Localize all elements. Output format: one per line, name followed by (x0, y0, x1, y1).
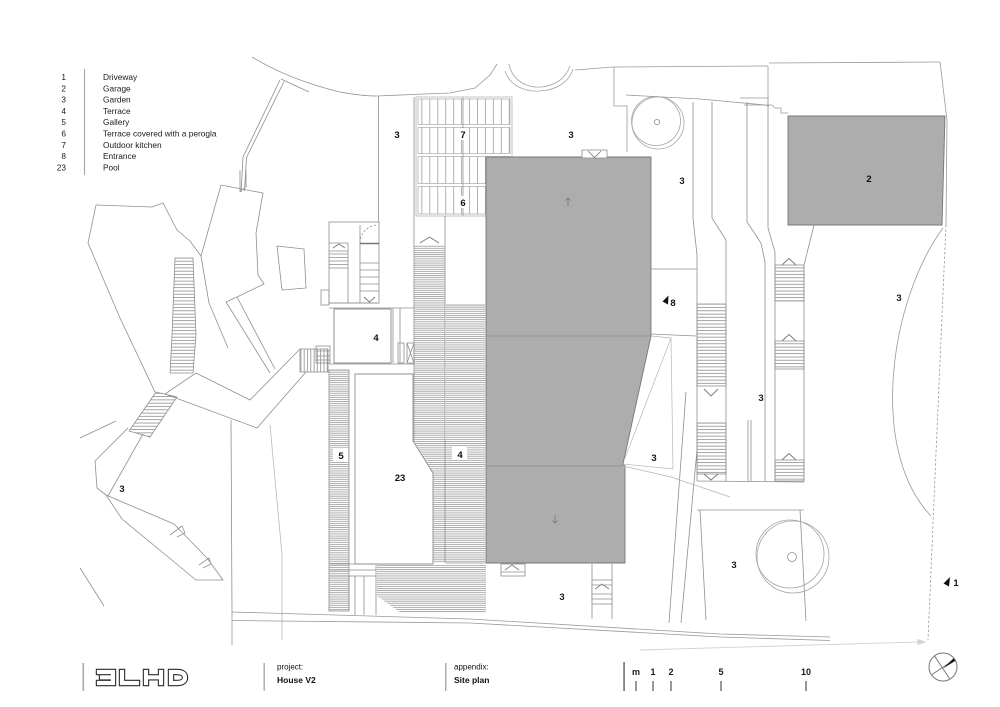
svg-text:4: 4 (61, 106, 66, 116)
svg-text:8: 8 (670, 298, 675, 309)
svg-text:m: m (632, 667, 640, 677)
svg-text:1: 1 (953, 578, 959, 589)
svg-text:23: 23 (57, 162, 67, 172)
svg-text:5: 5 (718, 667, 723, 677)
svg-text:3: 3 (651, 453, 656, 464)
svg-text:3: 3 (61, 95, 66, 105)
svg-text:Entrance: Entrance (103, 151, 137, 161)
svg-text:project:: project: (277, 663, 303, 672)
svg-text:3: 3 (394, 130, 399, 141)
svg-text:7: 7 (61, 140, 66, 150)
svg-text:House V2: House V2 (277, 675, 316, 685)
svg-text:Garden: Garden (103, 95, 131, 105)
svg-text:5: 5 (338, 451, 344, 462)
svg-text:23: 23 (395, 473, 406, 484)
svg-text:Terrace covered with a perogla: Terrace covered with a perogla (103, 129, 217, 139)
svg-text:3: 3 (119, 484, 124, 495)
svg-text:Terrace: Terrace (103, 106, 131, 116)
svg-text:1: 1 (650, 667, 655, 677)
svg-text:3: 3 (568, 130, 573, 141)
svg-text:8: 8 (61, 151, 66, 161)
svg-text:4: 4 (457, 450, 463, 461)
svg-text:Garage: Garage (103, 83, 131, 93)
svg-text:4: 4 (373, 333, 379, 344)
svg-text:6: 6 (61, 129, 66, 139)
svg-text:Pool: Pool (103, 162, 120, 172)
svg-text:3: 3 (559, 592, 564, 603)
svg-text:3: 3 (679, 176, 684, 187)
svg-text:3: 3 (731, 560, 736, 571)
svg-text:Site plan: Site plan (454, 675, 489, 685)
svg-text:2: 2 (668, 667, 673, 677)
svg-text:10: 10 (801, 667, 811, 677)
svg-text:2: 2 (866, 174, 871, 185)
svg-text:Driveway: Driveway (103, 72, 138, 82)
svg-text:3: 3 (758, 393, 763, 404)
svg-text:3: 3 (896, 293, 901, 304)
svg-text:Gallery: Gallery (103, 117, 130, 127)
svg-text:6: 6 (460, 198, 465, 209)
svg-text:1: 1 (61, 72, 66, 82)
svg-text:5: 5 (61, 117, 66, 127)
svg-text:2: 2 (61, 83, 66, 93)
svg-text:7: 7 (460, 130, 465, 141)
svg-text:appendix:: appendix: (454, 663, 489, 672)
svg-text:Outdoor kitchen: Outdoor kitchen (103, 140, 162, 150)
